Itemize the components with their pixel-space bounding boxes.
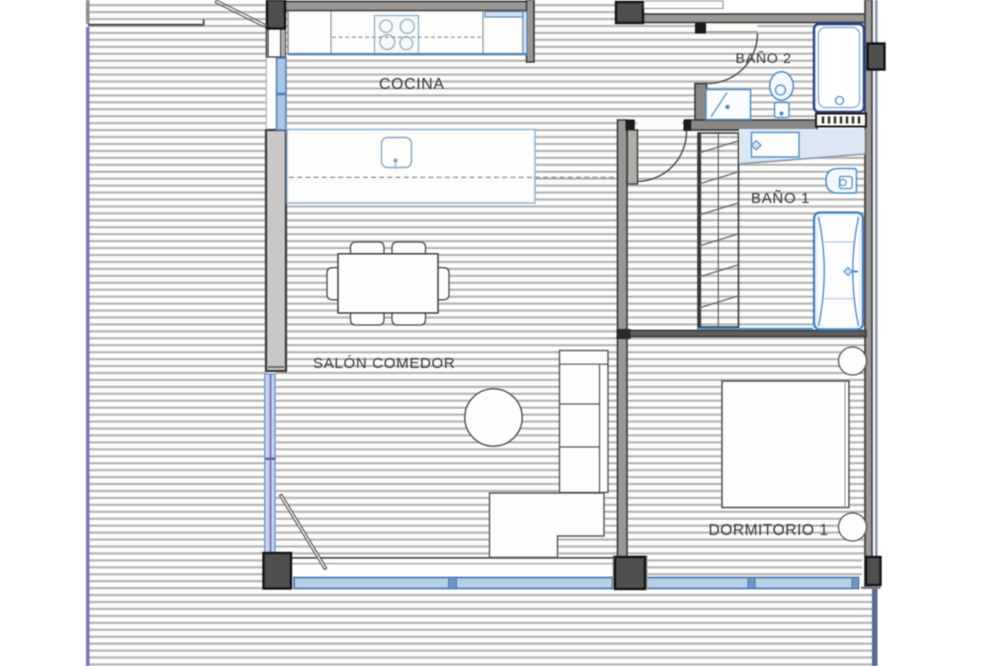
svg-text:BAÑO 2: BAÑO 2 bbox=[736, 50, 792, 67]
svg-text:DORMITORIO 1: DORMITORIO 1 bbox=[709, 522, 829, 539]
svg-text:BAÑO 1: BAÑO 1 bbox=[751, 190, 810, 207]
svg-text:COCINA: COCINA bbox=[379, 76, 445, 93]
svg-text:SALÓN COMEDOR: SALÓN COMEDOR bbox=[313, 355, 455, 372]
